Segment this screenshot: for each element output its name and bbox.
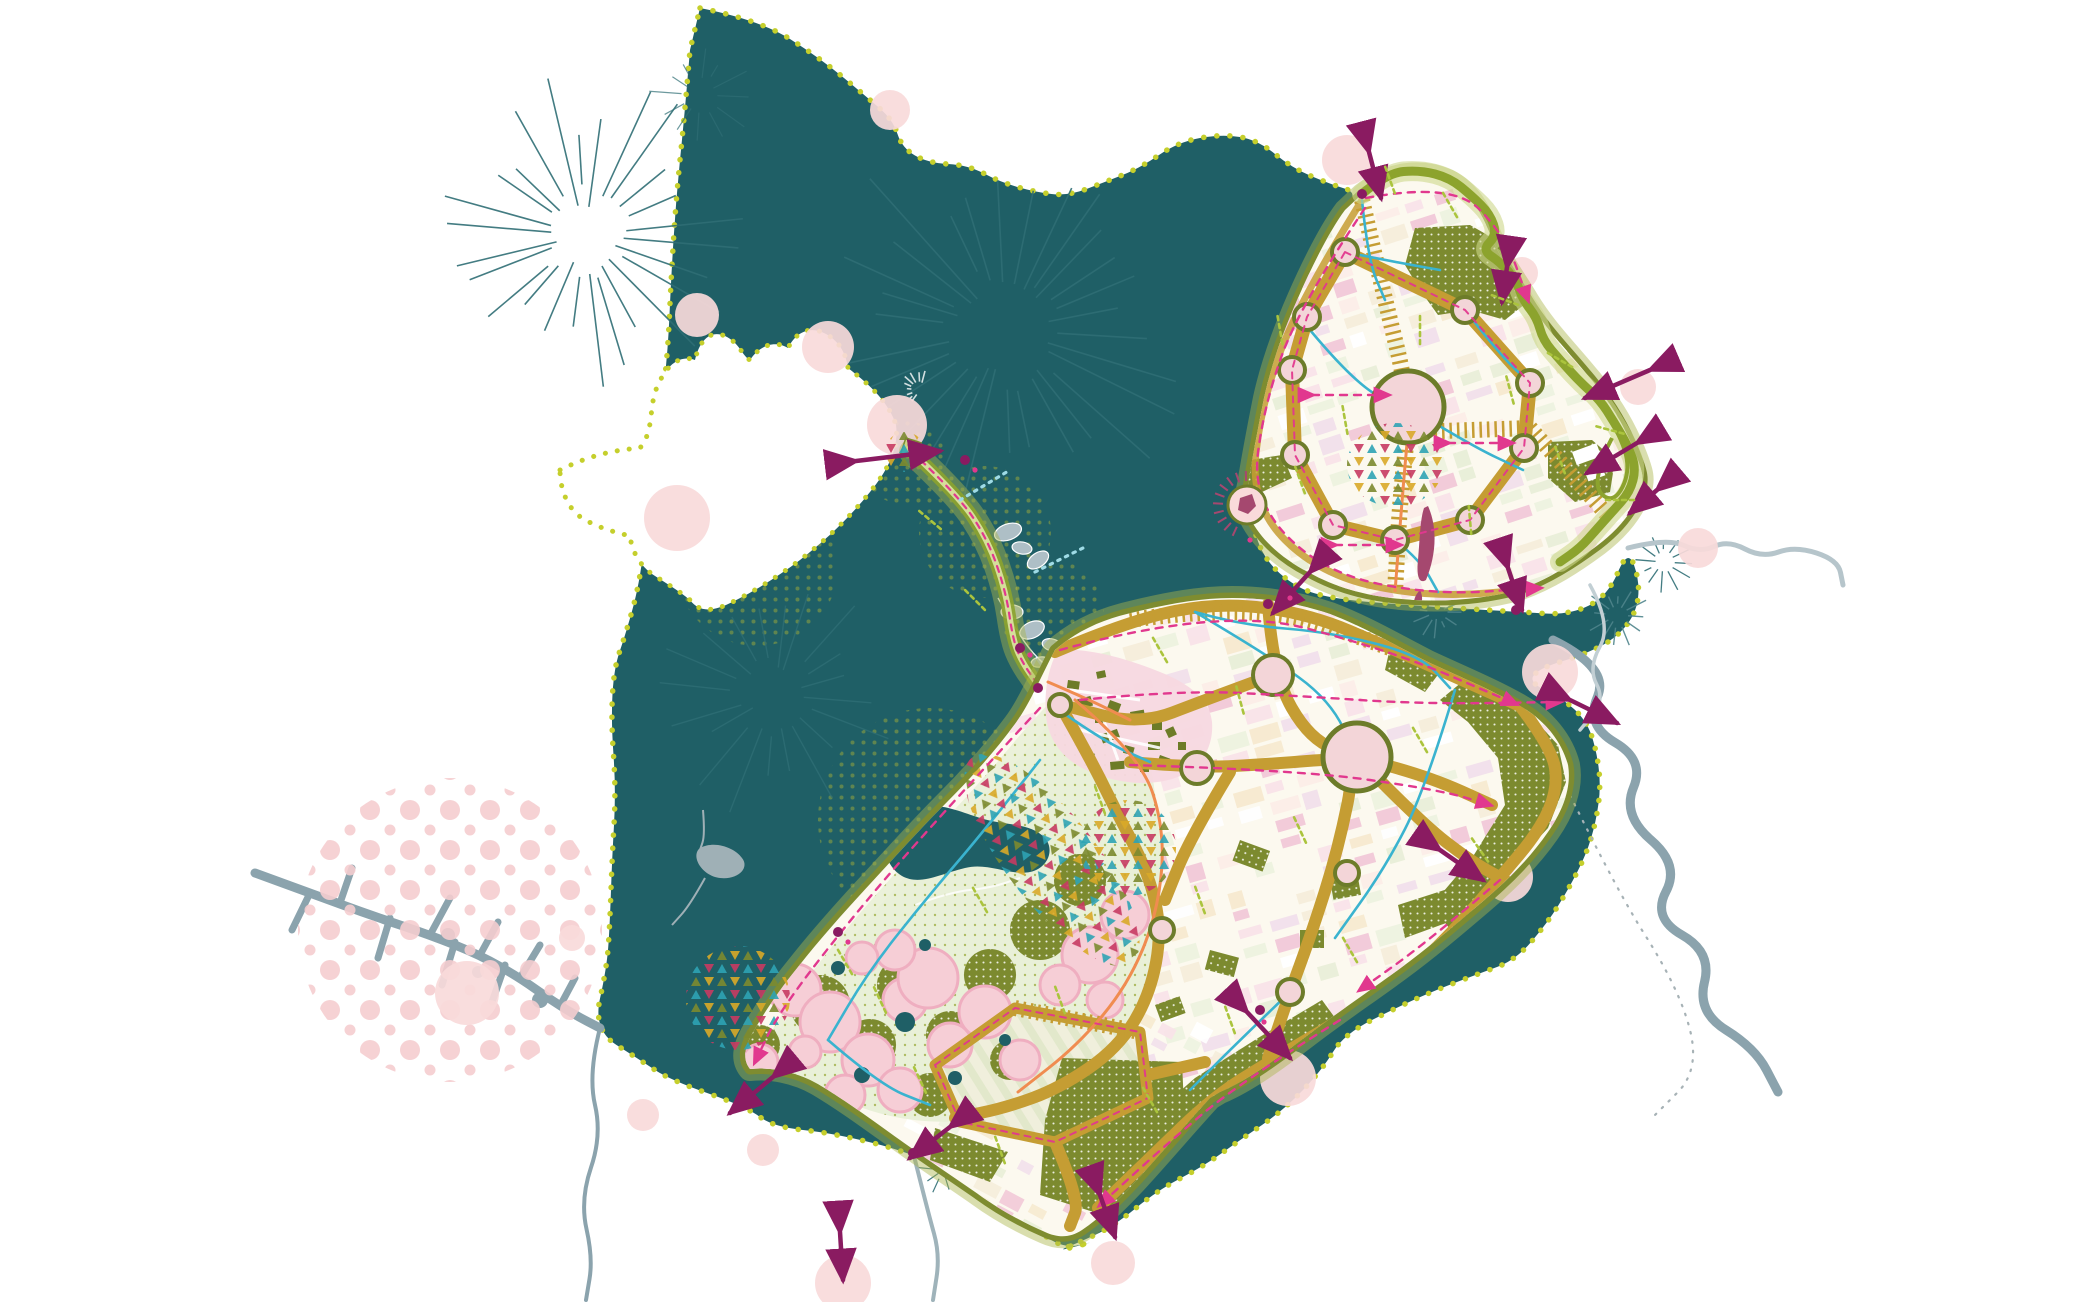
halo-circle <box>644 485 710 551</box>
link-node <box>960 455 970 465</box>
park-pond <box>831 961 845 975</box>
double-arrow <box>840 1232 843 1280</box>
link-node <box>1015 643 1025 653</box>
halo-circle <box>627 1099 659 1131</box>
village-building <box>1110 761 1125 770</box>
link-minidot <box>1247 537 1252 542</box>
junction-node <box>1511 435 1537 461</box>
halo-circle <box>435 961 499 1025</box>
junction-node <box>1253 655 1293 695</box>
confetti-cluster <box>1347 423 1443 507</box>
link-node <box>1255 1005 1265 1015</box>
link-node <box>1357 189 1367 199</box>
map-canvas <box>0 0 2083 1302</box>
link-node <box>833 927 843 937</box>
harbour-ray <box>1213 503 1223 504</box>
halo-circle <box>559 925 585 951</box>
park-pond <box>895 1012 915 1032</box>
halo-circle <box>1091 1241 1135 1285</box>
link-minidot <box>845 939 850 944</box>
junction-node <box>1335 861 1359 885</box>
link-node <box>1511 605 1521 615</box>
halo-circle <box>870 90 910 130</box>
link-minidot <box>1287 595 1292 600</box>
park-pond <box>919 939 931 951</box>
ray <box>919 372 920 381</box>
link-minidot <box>1027 652 1032 657</box>
halo-circle <box>802 321 854 373</box>
link-node <box>908 1148 918 1158</box>
halftone-pink-circle <box>298 778 602 1082</box>
junction-node <box>1150 918 1174 942</box>
masterplan-map <box>0 0 2083 1302</box>
halftone-grove <box>298 778 602 1082</box>
halo-circle <box>1678 528 1718 568</box>
junction-node <box>1049 694 1071 716</box>
tree-canopy <box>878 1068 922 1112</box>
junction-node <box>1382 527 1408 553</box>
confetti-cluster <box>1080 800 1176 896</box>
village-building <box>1067 680 1080 690</box>
link-node <box>1033 683 1043 693</box>
link-minidot <box>1261 1019 1266 1024</box>
halo-circle <box>675 293 719 337</box>
halo-circle <box>1322 135 1372 185</box>
confetti-cluster <box>686 946 790 1050</box>
link-minidot <box>972 467 977 472</box>
park-pond <box>948 1071 962 1085</box>
link-node <box>1263 599 1273 609</box>
halo-circle <box>1522 644 1578 700</box>
junction-node <box>1181 752 1213 784</box>
tree-canopy <box>789 1036 821 1068</box>
village-building <box>1178 742 1186 750</box>
halo-circle <box>747 1134 779 1166</box>
tree-canopy <box>1000 1040 1040 1080</box>
junction-node <box>1277 979 1303 1005</box>
park-pond <box>999 1034 1011 1046</box>
